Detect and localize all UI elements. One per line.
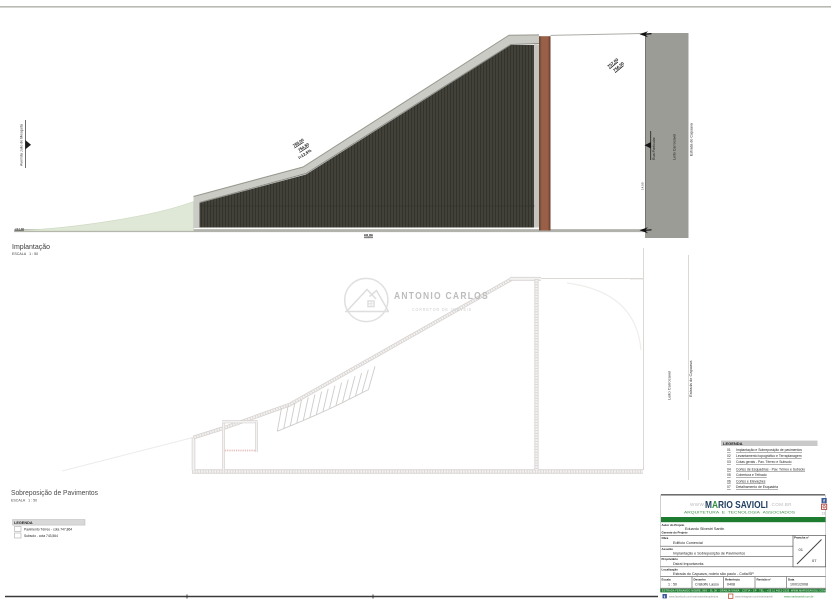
svg-text:Rua Particular: Rua Particular	[652, 136, 656, 160]
svg-text:Avenida Julio de Mesquita: Avenida Julio de Mesquita	[20, 124, 24, 166]
svg-text:www.instagram.com/mariosavioli: www.instagram.com/mariosavioli	[735, 595, 773, 599]
svg-text:Subsolo - cota 743,564: Subsolo - cota 743,564	[24, 534, 58, 538]
svg-text:Revisão n°: Revisão n°	[757, 577, 773, 581]
svg-text:Edifício Comercial: Edifício Comercial	[673, 541, 703, 545]
svg-text:Cristoffe Lasso: Cristoffe Lasso	[695, 582, 719, 586]
svg-text:07: 07	[812, 558, 817, 563]
svg-text:ANTONIO CARLOS: ANTONIO CARLOS	[394, 291, 489, 302]
svg-text:Autor do Projeto: Autor do Projeto	[662, 523, 685, 527]
svg-text:Pavimento Térreo - cota 747,86: Pavimento Térreo - cota 747,864	[24, 528, 72, 532]
svg-text:ARQUITETURA E TECNOLOGIA AS: ARQUITETURA E TECNOLOGIA ASSOCIADOS	[684, 511, 796, 515]
svg-text:Localização: Localização	[662, 567, 679, 571]
svg-text:Proprietário: Proprietário	[662, 557, 679, 561]
svg-text:ESCALA 1 : 50: ESCALA 1 : 50	[11, 499, 37, 503]
svg-text:WWW.: WWW.	[690, 502, 706, 507]
svg-text:MARIO SAVIOLI: MARIO SAVIOLI	[705, 499, 768, 511]
svg-text:Detalhamento de Esquadria: Detalhamento de Esquadria	[736, 485, 778, 489]
svg-text:Implantação: Implantação	[12, 242, 50, 251]
svg-text:02: 02	[727, 454, 731, 458]
svg-text:Sobreposição de Pavimentos: Sobreposição de Pavimentos	[11, 488, 98, 497]
svg-text:Desenho: Desenho	[694, 577, 706, 581]
svg-text:Implantação e Sobreposição de: Implantação e Sobreposição de Pavimentos	[673, 551, 745, 555]
svg-text:Assunto: Assunto	[662, 547, 674, 551]
svg-text:Cobertura e Telhado: Cobertura e Telhado	[736, 473, 767, 477]
svg-text:Cortes e Elevações: Cortes e Elevações	[736, 480, 766, 484]
svg-text:07: 07	[727, 485, 731, 489]
svg-text:.COM.BR: .COM.BR	[770, 502, 792, 507]
svg-text:Leito Carrocavel: Leito Carrocavel	[673, 134, 677, 160]
svg-text:www.facebook.com/mariosaviolia: www.facebook.com/mariosavioliarquitetura	[669, 595, 719, 599]
svg-text:14,50: 14,50	[641, 182, 645, 190]
svg-text:01: 01	[727, 448, 731, 452]
svg-text:Estrada do Capuava: Estrada do Capuava	[690, 123, 694, 156]
svg-text:ESTRADA FERNANDO NOBRE, 869 -: ESTRADA FERNANDO NOBRE, 869 - SL 08 - GR…	[662, 590, 830, 593]
svg-text:www.mariosavioli.com.br: www.mariosavioli.com.br	[784, 595, 814, 599]
svg-text:Levantamento topográfico e Ter: Levantamento topográfico e Terraplanagem	[736, 454, 802, 458]
svg-text:Gerente do Projeto: Gerente do Projeto	[662, 531, 688, 535]
svg-text:LEGENDA: LEGENDA	[14, 521, 33, 525]
svg-text:Prancha n°: Prancha n°	[794, 536, 810, 540]
svg-text:CORRETOR DE IMOVEIS: CORRETOR DE IMOVEIS	[412, 307, 472, 312]
svg-text:0408: 0408	[727, 582, 735, 586]
svg-text:Referência: Referência	[725, 577, 740, 581]
svg-text:06: 06	[727, 480, 731, 484]
svg-text:Eduardo Silvestri Santin: Eduardo Silvestri Santin	[685, 527, 724, 531]
svg-text:Estrada do Capuava: Estrada do Capuava	[688, 360, 693, 397]
svg-text:Estrada do Capuava, rodeio são: Estrada do Capuava, rodeio são paulo - C…	[673, 572, 754, 576]
svg-text:68,86: 68,86	[364, 234, 373, 238]
svg-text:10/01/2008: 10/01/2008	[790, 582, 808, 586]
svg-text:01: 01	[799, 547, 804, 552]
svg-text:LEGENDA: LEGENDA	[723, 441, 743, 446]
svg-text:Leito Carrocavel: Leito Carrocavel	[667, 371, 672, 400]
svg-text:Data: Data	[788, 577, 795, 581]
svg-text:747,86: 747,86	[15, 227, 25, 231]
svg-text:05: 05	[727, 473, 731, 477]
svg-text:Dsiral Importworks: Dsiral Importworks	[673, 562, 704, 566]
svg-text:Obra: Obra	[662, 536, 669, 540]
svg-text:Cortes de Esquadrias - Pav. Té: Cortes de Esquadrias - Pav. Térreo e Sub…	[736, 468, 805, 472]
svg-text:13: 13	[822, 512, 826, 516]
svg-text:1 : 50: 1 : 50	[668, 582, 677, 586]
svg-text:04: 04	[727, 468, 731, 472]
svg-text:03: 03	[727, 460, 731, 464]
svg-text:Escala: Escala	[662, 577, 672, 581]
svg-text:ESCALA 1 : 50: ESCALA 1 : 50	[12, 252, 38, 256]
svg-text:Implantação e Sobreposição de: Implantação e Sobreposição de pavimentos	[736, 448, 802, 452]
svg-text:Cotas gerais - Pav. Térreo e S: Cotas gerais - Pav. Térreo e Subsolo	[736, 460, 792, 464]
